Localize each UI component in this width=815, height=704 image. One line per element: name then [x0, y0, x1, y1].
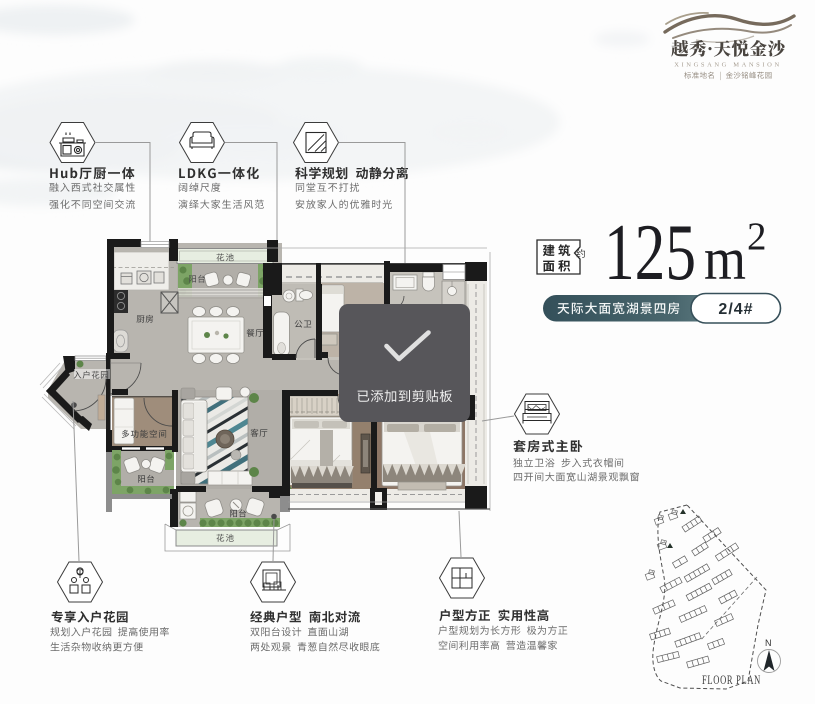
svg-text:2/4#: 2/4#: [718, 301, 753, 318]
svg-text:125: 125: [604, 207, 696, 297]
svg-text:m: m: [704, 226, 746, 292]
svg-text:2: 2: [747, 215, 767, 258]
svg-text:FLOOR PLAN: FLOOR PLAN: [702, 673, 761, 687]
svg-text:XINGSANG MANSION: XINGSANG MANSION: [674, 62, 782, 69]
svg-text:N: N: [765, 638, 772, 648]
